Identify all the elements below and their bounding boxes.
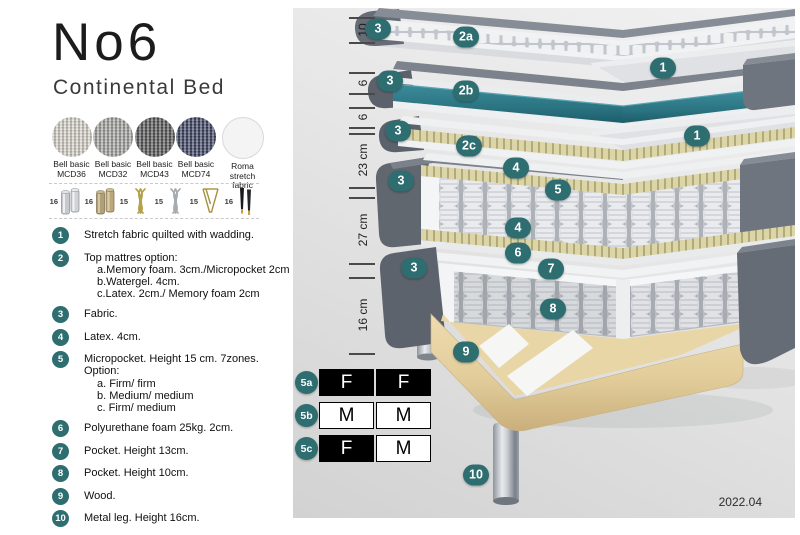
firmness-cell: M	[319, 402, 374, 429]
legend-text: Fabric.	[84, 308, 118, 320]
dimension-label: 23 cm	[356, 144, 370, 177]
leg-option: 16	[84, 186, 119, 216]
page-subtitle: Continental Bed	[53, 76, 225, 100]
legend-number-badge: 7	[52, 443, 69, 460]
callout-1: 1	[684, 126, 710, 147]
fabric-swatch-label: Bell basicMCD43	[136, 160, 172, 179]
fabric-swatches: Bell basicMCD36Bell basicMCD32Bell basic…	[51, 117, 264, 191]
firmness-cell: M	[376, 435, 431, 462]
firmness-badge: 5a	[295, 371, 318, 394]
legend-text-line: Pocket. Height 10cm.	[84, 467, 189, 479]
diagram-panel: 106623 cm27 cm16 cm 32a132b132c453467389…	[293, 8, 795, 518]
leg-height-label: 16	[84, 197, 93, 206]
firmness-badge: 5c	[295, 437, 318, 460]
firmness-row-5b: 5bMM	[295, 402, 431, 429]
legend-item: 4Latex. 4cm.	[52, 331, 294, 346]
legend-item: 8Pocket. Height 10cm.	[52, 467, 294, 482]
firmness-cell: F	[376, 369, 431, 396]
legend-item: 1Stretch fabric quilted with wadding.	[52, 229, 294, 244]
leg-height-label: 15	[119, 197, 128, 206]
twist-gold-leg-icon	[128, 186, 153, 216]
fabric-swatch-circle	[52, 117, 92, 157]
legend-text-line: Latex. 4cm.	[84, 331, 141, 343]
legend-number-badge: 9	[52, 488, 69, 505]
legend-sub-line: c. Firm/ medium	[84, 402, 294, 414]
fabric-swatch: Bell basicMCD74	[176, 117, 217, 191]
legend-number-badge: 6	[52, 420, 69, 437]
version-date: 2022.04	[719, 495, 762, 509]
leg-height-label: 16	[49, 197, 58, 206]
leg-height-label: 15	[189, 197, 198, 206]
dimension-label: 6	[356, 114, 370, 121]
leg-options: 161615151516	[49, 183, 259, 219]
legend-text: Top mattres option:a.Memory foam. 3cm./M…	[84, 252, 290, 301]
callout-3: 3	[388, 171, 414, 192]
legend-item: 3Fabric.	[52, 308, 294, 323]
legend-number-badge: 8	[52, 465, 69, 482]
callout-3: 3	[365, 19, 391, 40]
fabric-swatch-circle	[135, 117, 175, 157]
firmness-table: MM	[319, 402, 431, 429]
callout-3: 3	[385, 121, 411, 142]
firmness-cell: F	[319, 435, 374, 462]
fabric-swatch-label: Bell basicMCD36	[53, 160, 89, 179]
legend-text-line: Stretch fabric quilted with wadding.	[84, 229, 254, 241]
legend-number-badge: 1	[52, 227, 69, 244]
left-panel: No6 Continental Bed Bell basicMCD36Bell …	[0, 0, 293, 533]
dimension-tick	[349, 93, 375, 95]
dimension-tick	[349, 263, 375, 265]
legend-number-badge: 4	[52, 329, 69, 346]
dimension-label: 27 cm	[356, 214, 370, 247]
page: { "header": { "title": "No6", "subtitle"…	[0, 0, 800, 533]
callout-1: 1	[650, 58, 676, 79]
callout-3: 3	[377, 71, 403, 92]
legend-item: 10Metal leg. Height 16cm.	[52, 512, 294, 527]
legend-text: Stretch fabric quilted with wadding.	[84, 229, 254, 241]
legend-text-line: Top mattres option:	[84, 252, 290, 264]
legend-item: 2Top mattres option:a.Memory foam. 3cm./…	[52, 252, 294, 301]
legend-text-line: Polyurethane foam 25kg. 2cm.	[84, 422, 233, 434]
legend-list: 1Stretch fabric quilted with wadding.2To…	[52, 229, 294, 535]
legend-text-line: Fabric.	[84, 308, 118, 320]
legend-text-line: Wood.	[84, 490, 116, 502]
dimension-tick	[349, 187, 375, 189]
legend-item: 7Pocket. Height 13cm.	[52, 445, 294, 460]
dimension-tick	[349, 107, 375, 109]
callout-2b: 2b	[453, 81, 479, 102]
legend-text: Latex. 4cm.	[84, 331, 141, 343]
leg-option: 15	[154, 186, 189, 216]
legend-text: Polyurethane foam 25kg. 2cm.	[84, 422, 233, 434]
dimension-label: 6	[356, 79, 370, 86]
legend-item: 6Polyurethane foam 25kg. 2cm.	[52, 422, 294, 437]
dimension-tick	[349, 72, 375, 74]
legend-text: Pocket. Height 13cm.	[84, 445, 189, 457]
legend-sub-line: a.Memory foam. 3cm./Micropocket 2cm	[84, 264, 290, 276]
tapered-black-leg-icon	[233, 186, 258, 216]
leg-option: 16	[224, 186, 259, 216]
fabric-swatch: Bell basicMCD43	[134, 117, 175, 191]
legend-item: 9Wood.	[52, 490, 294, 505]
leg-option: 15	[119, 186, 154, 216]
front-metal-leg	[493, 423, 519, 503]
legend-text: Wood.	[84, 490, 116, 502]
callout-3: 3	[401, 258, 427, 279]
dimension-tick	[349, 353, 375, 355]
dimension-tick	[349, 197, 375, 199]
leg-height-label: 15	[154, 197, 163, 206]
leg-option: 16	[49, 186, 84, 216]
fabric-swatch-label: Bell basicMCD32	[95, 160, 131, 179]
fabric-swatch: Bell basicMCD32	[93, 117, 134, 191]
fabric-swatch: Bell basicMCD36	[51, 117, 92, 191]
firmness-row-5a: 5aFF	[295, 369, 431, 396]
legend-sub-line: b. Medium/ medium	[84, 390, 294, 402]
firmness-cell: M	[376, 402, 431, 429]
dimension-tick	[349, 127, 375, 129]
hairpin-leg-icon	[198, 186, 223, 216]
legend-sub-line: b.Watergel. 4cm.	[84, 276, 290, 288]
callout-4: 4	[503, 158, 529, 179]
firmness-table: FM	[319, 435, 431, 462]
fabric-swatch-circle	[222, 117, 264, 159]
layer-main-mattress	[376, 150, 795, 266]
legend-text-line: Micropocket. Height 15 cm. 7zones. Optio…	[84, 353, 294, 378]
firmness-badge: 5b	[295, 404, 318, 427]
legend-text: Pocket. Height 10cm.	[84, 467, 189, 479]
leg-option: 15	[189, 186, 224, 216]
legend-sub-line: c.Latex. 2cm./ Memory foam 2cm	[84, 288, 290, 300]
legend-sub-line: a. Firm/ firm	[84, 378, 294, 390]
fabric-swatch-circle	[176, 117, 216, 157]
legend-number-badge: 3	[52, 306, 69, 323]
fabric-swatch-circle	[93, 117, 133, 157]
firmness-table: FF	[319, 369, 431, 396]
legend-number-badge: 10	[52, 510, 69, 527]
firmness-cell: F	[319, 369, 374, 396]
callout-10: 10	[463, 465, 489, 486]
callout-9: 9	[453, 342, 479, 363]
callout-2a: 2a	[453, 27, 479, 48]
dimension-tick	[349, 277, 375, 279]
fabric-swatch-label: Bell basicMCD74	[178, 160, 214, 179]
callout-6: 6	[505, 243, 531, 264]
dimension-tick	[349, 133, 375, 135]
legend-text-line: Pocket. Height 13cm.	[84, 445, 189, 457]
legend-text: Micropocket. Height 15 cm. 7zones. Optio…	[84, 353, 294, 414]
callout-4: 4	[505, 218, 531, 239]
dimension-tick	[349, 42, 375, 44]
cylinder-wood-leg-icon	[93, 186, 118, 216]
callout-5: 5	[545, 180, 571, 201]
firmness-row-5c: 5cFM	[295, 435, 431, 462]
callout-8: 8	[540, 299, 566, 320]
dimension-label: 16 cm	[356, 299, 370, 332]
legend-text-line: Metal leg. Height 16cm.	[84, 512, 200, 524]
legend-item: 5Micropocket. Height 15 cm. 7zones. Opti…	[52, 353, 294, 414]
cylinder-silver-leg-icon	[58, 186, 83, 216]
twist-silver-leg-icon	[163, 186, 188, 216]
fabric-swatch: Romastretch fabric	[222, 117, 263, 191]
legend-text: Metal leg. Height 16cm.	[84, 512, 200, 524]
leg-height-label: 16	[224, 197, 233, 206]
legend-number-badge: 5	[52, 351, 69, 368]
legend-number-badge: 2	[52, 250, 69, 267]
page-title: No6	[52, 16, 161, 69]
callout-7: 7	[538, 259, 564, 280]
callout-2c: 2c	[456, 136, 482, 157]
